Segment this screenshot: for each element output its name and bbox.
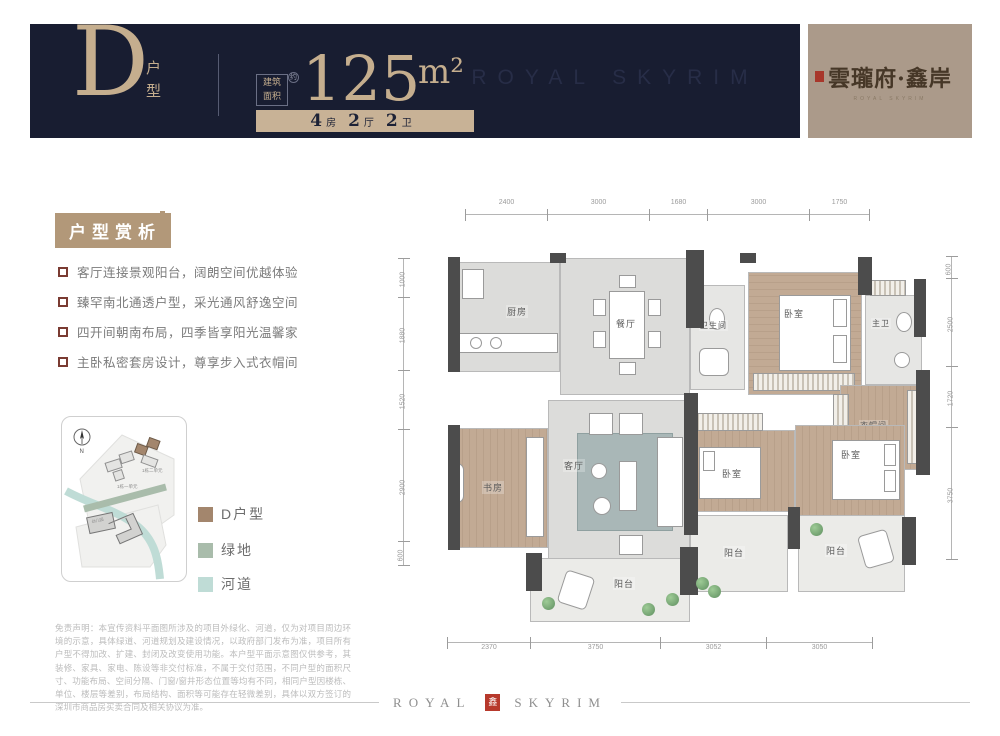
wall-segment <box>684 393 698 535</box>
room-living: 客厅 <box>548 400 690 565</box>
building-label: 1栋一单元 <box>117 483 138 490</box>
analysis-bullet: 四开间朝南布局，四季皆享阳光温馨家 <box>58 322 358 341</box>
wall-segment <box>680 547 698 595</box>
wall-segment <box>448 257 460 372</box>
baths-unit: 卫 <box>402 114 412 129</box>
footer-seal-icon: 鑫 <box>485 694 500 711</box>
plant-icon <box>708 585 721 598</box>
brand-logo-text: 雲瓏府·鑫岸 <box>828 61 952 93</box>
wall-segment <box>914 279 926 337</box>
area-about-badge: 约 <box>288 72 299 83</box>
room-study: 书房 <box>455 428 548 548</box>
dimension-column-left: 1000 1880 1520 2900 600 <box>398 258 410 566</box>
header-band: D 户型 建筑 面积 约 125 m² 4 房 2 厅 2 卫 ROYAL SK… <box>30 24 800 138</box>
wall-segment <box>740 253 756 263</box>
sitemap-drawing: 1栋一单元 1栋二单元 幼儿园 N <box>62 417 186 581</box>
spec-bar: 4 房 2 厅 2 卫 <box>256 110 474 132</box>
header-divider <box>218 54 219 116</box>
analysis-title-bar <box>160 211 165 244</box>
brand-logo-box: 雲瓏府·鑫岸 ROYAL SKYRIM <box>808 24 972 138</box>
unit-letter: D <box>72 10 149 116</box>
bedrooms-unit: 房 <box>326 114 336 129</box>
dimension-row-top: 2400 3000 1680 3000 1750 <box>465 209 870 221</box>
wall-segment <box>858 257 872 295</box>
balcony-main: 阳台 <box>530 558 690 622</box>
legend-swatch <box>198 543 213 558</box>
unit-type-label: 户型 <box>142 60 163 106</box>
room-kitchen: 厨房 <box>455 262 560 372</box>
footer-rule-right <box>621 702 970 703</box>
bedrooms-count: 4 <box>310 111 322 131</box>
svg-text:N: N <box>80 449 84 455</box>
legend-swatch <box>198 507 213 522</box>
wall-segment <box>550 253 566 263</box>
legend-item-river: 河道 <box>198 574 318 594</box>
wall-segment <box>526 553 542 591</box>
building-label: 1栋二单元 <box>142 467 163 474</box>
plant-icon <box>696 577 709 590</box>
legend-item-d-unit: D户型 <box>198 504 318 524</box>
brand-logo-subtext: ROYAL SKYRIM <box>828 96 952 102</box>
baths-count: 2 <box>386 111 398 131</box>
dimension-row-bottom: 2370 3750 3052 3050 <box>447 637 873 649</box>
sitemap-card: 1栋一单元 1栋二单元 幼儿园 N <box>61 416 187 582</box>
area-prefix: 建筑 面积 <box>256 74 288 106</box>
footer-word-right: SKYRIM <box>514 695 607 711</box>
analysis-title: 户型赏析 <box>55 213 171 248</box>
analysis-bullet: 客厅连接景观阳台，阔朗空间优越体验 <box>58 262 358 281</box>
bullet-marker-icon <box>58 267 68 277</box>
halls-unit: 厅 <box>364 114 374 129</box>
plant-icon <box>642 603 655 616</box>
analysis-bullet: 主卧私密套房设计，尊享步入式衣帽间 <box>58 352 358 371</box>
plant-icon <box>810 523 823 536</box>
dimension-column-right: 600 2500 1720 3750 <box>946 256 958 560</box>
wall-segment <box>448 425 460 550</box>
wall-segment <box>686 250 704 328</box>
plant-icon <box>542 597 555 610</box>
bullet-marker-icon <box>58 357 68 367</box>
footer-rule-left <box>30 702 379 703</box>
brochure-page: D 户型 建筑 面积 约 125 m² 4 房 2 厅 2 卫 ROYAL SK… <box>0 0 1000 736</box>
legend-item-greenery: 绿地 <box>198 540 318 560</box>
wall-segment <box>788 507 800 549</box>
analysis-bullet: 臻罕南北通透户型，采光通风舒逸空间 <box>58 292 358 311</box>
room-bedroom-top: 卧室 <box>748 272 862 395</box>
footer-word-left: ROYAL <box>393 695 471 711</box>
room-dining: 餐厅 <box>560 258 690 395</box>
floorplan: 2400 3000 1680 3000 1750 1000 1880 1520 … <box>390 195 975 670</box>
plant-icon <box>666 593 679 606</box>
brand-seal-icon <box>815 71 824 82</box>
halls-count: 2 <box>348 111 360 131</box>
wall-segment <box>916 370 930 475</box>
bullet-marker-icon <box>58 327 68 337</box>
wall-segment <box>902 517 916 565</box>
footer-brand: ROYAL 鑫 SKYRIM <box>30 694 970 711</box>
header-watermark: ROYAL SKYRIM <box>450 66 780 90</box>
area-value: 125 <box>302 42 420 115</box>
legend-swatch <box>198 577 213 592</box>
room-bedroom-mid: 卧室 <box>690 430 795 512</box>
north-compass-icon: N <box>74 429 90 455</box>
bullet-marker-icon <box>58 297 68 307</box>
room-bedroom-right: 卧室 <box>795 425 905 525</box>
